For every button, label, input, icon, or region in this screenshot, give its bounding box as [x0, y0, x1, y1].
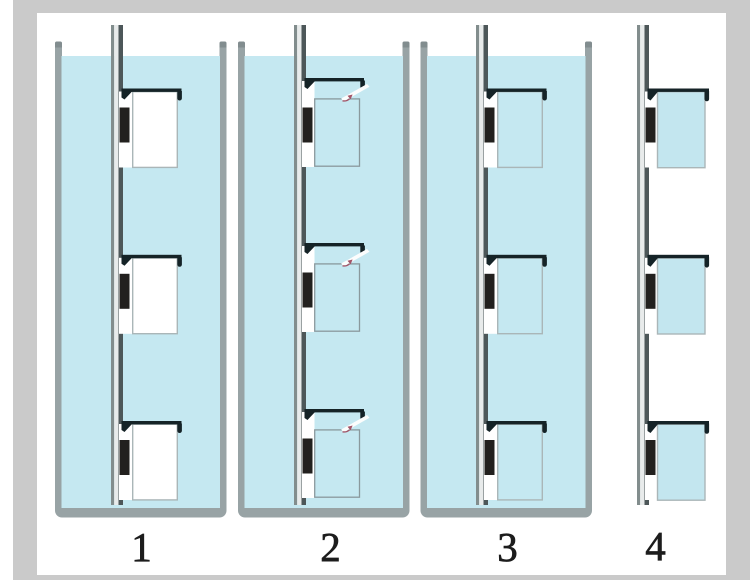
svg-text:2: 2 [320, 524, 341, 570]
svg-text:3: 3 [497, 524, 518, 570]
svg-text:1: 1 [131, 524, 152, 570]
svg-text:4: 4 [645, 523, 666, 569]
